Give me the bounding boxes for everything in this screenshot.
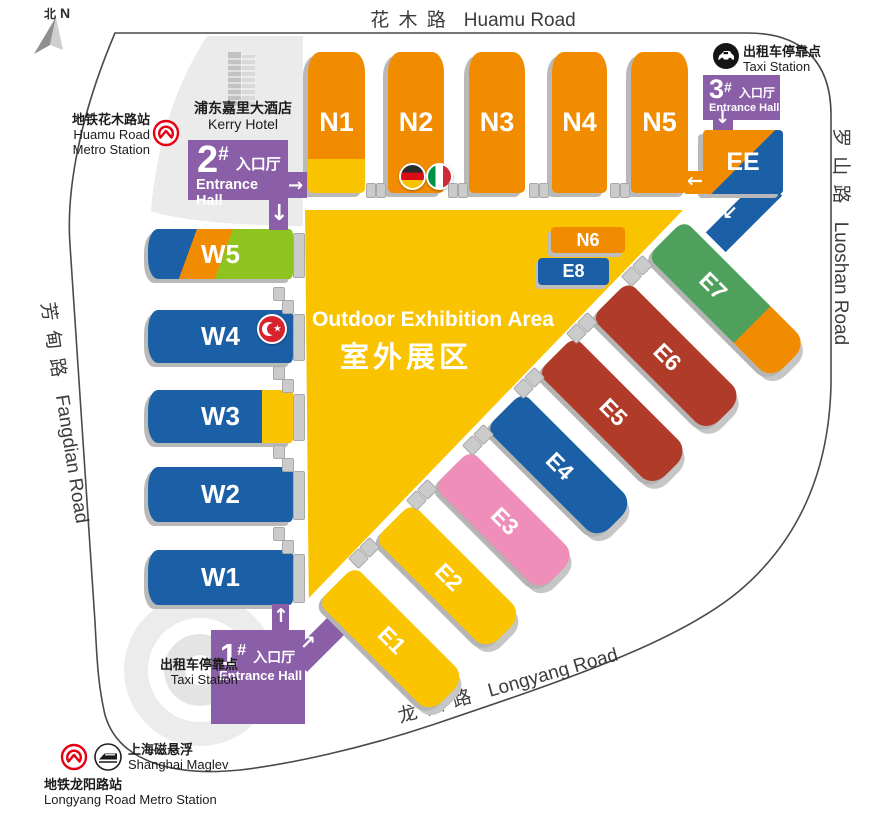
hall-n3-label: N3 — [480, 107, 515, 138]
kerry-hotel-zh: 浦东嘉里大酒店 — [182, 100, 304, 116]
connector-stub — [293, 471, 305, 520]
entrance-2-number: 2 — [197, 142, 218, 178]
metro-icon-huamu — [154, 121, 178, 145]
hall-e4-label: E4 — [540, 446, 579, 485]
hall-w5-label: W5 — [201, 239, 240, 270]
connector-stub — [293, 314, 305, 361]
compass-label: 北N — [44, 5, 70, 23]
connector-stub — [620, 183, 630, 198]
connector-stub — [610, 183, 620, 198]
hall-w3-yellow-section — [262, 390, 293, 443]
longyang-metro-en: Longyang Road Metro Station — [44, 792, 264, 807]
connector-stub — [293, 233, 305, 278]
arrow-up-icon: ↑ — [273, 607, 289, 626]
arrow-right-icon: → — [288, 177, 303, 195]
entrance-1-label-zh: 入口厅 — [253, 647, 295, 667]
hall-n4: N4 — [552, 52, 607, 193]
connector-stub — [282, 458, 294, 472]
kerry-hotel-label: 浦东嘉里大酒店 Kerry Hotel — [182, 100, 304, 132]
hall-ee: EE — [703, 130, 783, 194]
road-luoshan-en: Luoshan Road — [830, 222, 851, 346]
hall-e8: E8 — [538, 258, 609, 285]
arrow-left-icon: ← — [687, 172, 703, 191]
connector-stub — [273, 527, 285, 541]
hall-e3-label: E3 — [485, 501, 524, 540]
road-label-huamu: 花 木 路Huamu Road — [320, 5, 626, 32]
kerry-hotel-en: Kerry Hotel — [182, 116, 304, 132]
hall-n6: N6 — [551, 227, 625, 253]
connector-stub — [282, 379, 294, 393]
taxi-station-northeast-label: 出租车停靠点 Taxi Station — [743, 44, 843, 74]
connector-stub — [376, 183, 386, 198]
metro-icon-longyang — [62, 745, 86, 769]
taxi-ne-en: Taxi Station — [743, 59, 843, 74]
maglev-train-icon — [95, 744, 121, 770]
taxi-station-southwest-label: 出租车停靠点 Taxi Station — [136, 657, 238, 687]
connector-stub — [282, 540, 294, 554]
huamu-metro-label: 地铁花木路站 Huamu Road Metro Station — [56, 112, 150, 157]
entrance-3-hash: # — [724, 79, 732, 95]
hall-n2-label: N2 — [399, 107, 434, 138]
road-huamu-en: Huamu Road — [464, 10, 576, 31]
turkey-flag-icon: ★ — [257, 314, 287, 344]
entrance-2-hash: # — [218, 144, 229, 166]
connector-stub — [273, 366, 285, 380]
maglev-en: Shanghai Maglev — [128, 757, 248, 772]
hall-e6-label: E6 — [647, 337, 686, 376]
huamu-metro-zh: 地铁花木路站 — [56, 112, 150, 127]
entrance-3-label-zh: 入口厅 — [739, 84, 775, 101]
arrow-down-icon: ↓ — [270, 203, 288, 225]
entrance-hall-2: 2#入口厅 Entrance Hall — [188, 140, 288, 200]
outdoor-area-label-zh: 室外展区 — [340, 334, 472, 376]
hall-w3-label: W3 — [201, 401, 240, 432]
hall-n4-label: N4 — [562, 107, 597, 138]
hall-e1-label: E1 — [372, 620, 411, 659]
hall-e7-label: E7 — [693, 266, 732, 305]
hall-w1-label: W1 — [201, 562, 240, 593]
outdoor-area-label-en: Outdoor Exhibition Area — [312, 308, 554, 332]
huamu-metro-en1: Huamu Road — [56, 127, 150, 142]
arrow-up-right-icon: ↗ — [300, 634, 316, 653]
connector-stub — [539, 183, 549, 198]
connector-stub — [273, 287, 285, 301]
connector-stub — [529, 183, 539, 198]
hall-e5-label: E5 — [593, 392, 632, 431]
connector-stub — [448, 183, 458, 198]
hall-ee-label: EE — [726, 148, 759, 177]
hall-w1: W1 — [148, 550, 293, 605]
hall-n2: N2 — [388, 52, 444, 193]
arrow-down-icon: ↓ — [715, 109, 730, 127]
hall-w2: W2 — [148, 467, 293, 522]
entrance-1-hash: # — [237, 642, 246, 660]
taxi-ne-zh: 出租车停靠点 — [743, 44, 843, 59]
connector-stub — [293, 554, 305, 603]
arrow-down-left-icon: ↙ — [722, 204, 738, 223]
longyang-metro-label: 地铁龙阳路站 Longyang Road Metro Station — [44, 777, 264, 807]
hall-n1: N1 — [308, 52, 365, 193]
road-luoshan-zh: 罗 山 路 — [830, 128, 851, 206]
taxi-sw-en: Taxi Station — [136, 672, 238, 687]
germany-flag-icon — [399, 163, 426, 190]
hall-w5: W5 — [148, 229, 293, 279]
entrance-3-number: 3 — [709, 77, 724, 103]
shanghai-maglev-label: 上海磁悬浮 Shanghai Maglev — [128, 742, 248, 772]
hall-n5-label: N5 — [642, 107, 677, 138]
huamu-metro-en2: Metro Station — [56, 142, 150, 157]
connector-stub — [458, 183, 468, 198]
hall-w2-label: W2 — [201, 479, 240, 510]
entrance-2-label-zh: 入口厅 — [236, 153, 281, 174]
hall-n6-label: N6 — [576, 230, 599, 251]
maglev-zh: 上海磁悬浮 — [128, 742, 248, 757]
hall-w3: W3 — [148, 390, 293, 443]
hall-w4: ★W4 — [148, 310, 293, 363]
compass-label-en: N — [60, 5, 70, 21]
connector-stub — [366, 183, 376, 198]
compass-label-zh: 北 — [44, 7, 56, 21]
hall-n3: N3 — [469, 52, 525, 193]
connector-stub — [282, 300, 294, 314]
longyang-metro-zh: 地铁龙阳路站 — [44, 777, 264, 792]
taxi-sw-zh: 出租车停靠点 — [136, 657, 238, 672]
hall-w4-label: W4 — [201, 321, 240, 352]
hall-n1-label: N1 — [319, 107, 354, 138]
road-huamu-zh: 花 木 路 — [370, 10, 448, 31]
hall-e2-label: E2 — [429, 557, 468, 596]
connector-stub — [273, 445, 285, 459]
exhibition-center-map: Outdoor Exhibition Area 室外展区 N1N2N3N4N5W… — [0, 0, 882, 817]
hall-e8-label: E8 — [562, 261, 584, 282]
hall-n5: N5 — [631, 52, 688, 193]
hall-n1-yellow-section — [308, 159, 365, 193]
taxi-icon-northeast — [713, 43, 739, 69]
road-label-luoshan: 罗 山 路Luoshan Road — [829, 128, 856, 345]
turkey-flag-star: ★ — [274, 324, 281, 333]
connector-stub — [293, 394, 305, 441]
